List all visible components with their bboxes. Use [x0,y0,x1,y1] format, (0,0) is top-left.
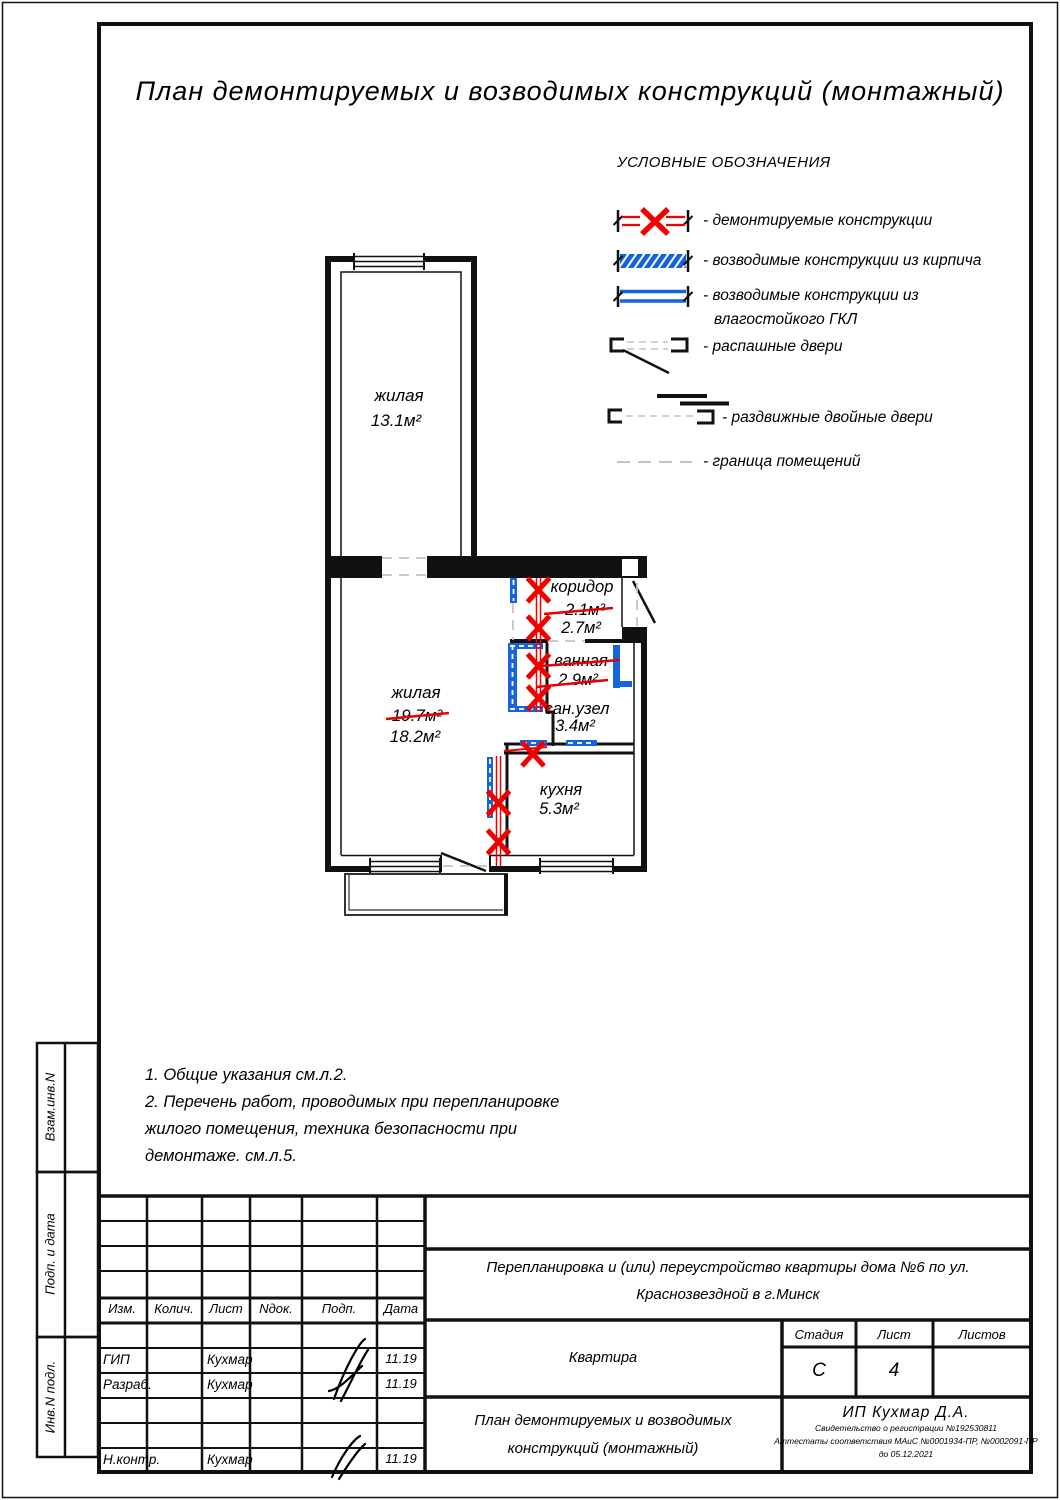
stamp-nkontr-name: Кухмар [207,1452,253,1468]
stamp-firm-cert-3: до 05.12.2021 [879,1450,933,1460]
window-top [354,257,424,267]
gkl-wall-icon [614,286,693,307]
room-living-main-name: жилая [391,683,440,703]
legend-label-sliding-doors: - раздвижные двойные двери [722,409,933,427]
signature-strokes [329,1339,368,1479]
balcony-inner-line [349,874,503,910]
room-living-top-area: 13.1м² [371,411,421,431]
stamp-col-list: Лист [209,1302,242,1317]
room-corridor-area-old: 2.1м² [565,601,605,620]
room-sanuzel-area: 3.4м² [555,717,595,736]
balcony-outline [345,874,507,915]
page-title: План демонтируемых и возводимых конструк… [135,76,1004,107]
legend-label-demolished: - демонтируемые конструкции [703,212,932,230]
stamp-gip-role: ГИП [103,1352,130,1368]
stamp-razrab-role: Разраб. [103,1377,152,1393]
demolition-x-icon [642,209,668,234]
side-label-podp-data: Подп. и дата [44,1213,59,1294]
room-corridor-area-new: 2.7м² [561,619,601,638]
legend-title: УСЛОВНЫЕ ОБОЗНАЧЕНИЯ [617,154,831,171]
stamp-firm-name: ИП Кухмар Д.А. [842,1404,969,1422]
stamp-object-line-1: Перепланировка и (или) переустройство кв… [486,1259,969,1276]
stamp-col-ndok: Nдок. [259,1302,293,1317]
stamp-sheet-value: 4 [889,1360,900,1382]
note-line-4: демонтаже. см.л.5. [145,1147,297,1166]
brick-wall-icon [614,250,694,272]
stamp-col-izm: Изм. [108,1302,136,1317]
stamp-doc-line-1: План демонтируемых и возводимых [474,1412,731,1429]
stamp-sheets-label: Листов [958,1328,1005,1343]
room-corridor-name: коридор [551,578,614,597]
stamp-sheet-label: Лист [877,1328,910,1343]
room-kitchen-area: 5.3м² [539,800,579,819]
room-bathroom-name: ванная [554,652,608,671]
legend-label-room-boundary: - граница помещений [703,453,860,471]
drawing-sheet: { "page": { "title": "План демонтируемых… [0,0,1060,1500]
balcony-door [441,853,490,872]
room-living-top-name: жилая [374,386,423,406]
side-label-inv: Инв.N подл. [44,1361,59,1433]
stamp-nkontr-date: 11.19 [385,1452,417,1467]
stamp-col-podp: Подп. [322,1302,357,1317]
stamp-object-line-2: Краснозвездной в г.Минск [636,1286,820,1303]
legend-label-gkl-2: влагостойкого ГКЛ [714,311,857,329]
stamp-col-data: Дата [384,1302,418,1317]
note-line-2: 2. Перечень работ, проводимых при перепл… [145,1093,559,1112]
legend-symbols [609,209,729,462]
room-bathroom-area-old: 2.9м² [558,671,598,690]
demolished-wall-icon [614,209,693,234]
room-living-main-area-new: 18.2м² [390,727,440,747]
side-label-vzam: Взам.инв.N [44,1073,59,1142]
legend-label-brick: - возводимые конструкции из кирпича [703,252,981,270]
note-line-3: жилого помещения, техника безопасности п… [145,1120,517,1139]
stamp-stage-value: С [812,1360,826,1382]
stamp-firm-cert-1: Свидетельство о регистрации №192530811 [815,1424,997,1434]
note-line-1: 1. Общие указания см.л.2. [145,1066,347,1085]
stamp-firm-cert-2: Аттестаты соответствия МАиС №0001934-ПР,… [774,1437,1037,1447]
stamp-nkontr-role: Н.контр. [103,1452,160,1468]
sliding-door-icon [609,396,729,423]
room-kitchen-name: кухня [540,781,582,800]
demolished-walls [497,578,548,866]
stamp-object-type: Квартира [569,1350,637,1367]
stamp-stage-label: Стадия [795,1328,844,1343]
swing-door-icon [611,339,687,373]
stamp-gip-date: 11.19 [385,1352,417,1367]
stamp-col-kolich: Колич. [154,1302,194,1317]
legend-label-gkl-1: - возводимые конструкции из [703,287,919,305]
stamp-doc-line-2: конструкций (монтажный) [508,1440,699,1457]
stamp-gip-name: Кухмар [207,1352,253,1368]
stamp-razrab-name: Кухмар [207,1377,253,1393]
stamp-razrab-date: 11.19 [385,1377,417,1392]
legend-label-swing-doors: - распашные двери [703,338,843,356]
room-living-main-area-old: 19.7м² [392,706,442,726]
